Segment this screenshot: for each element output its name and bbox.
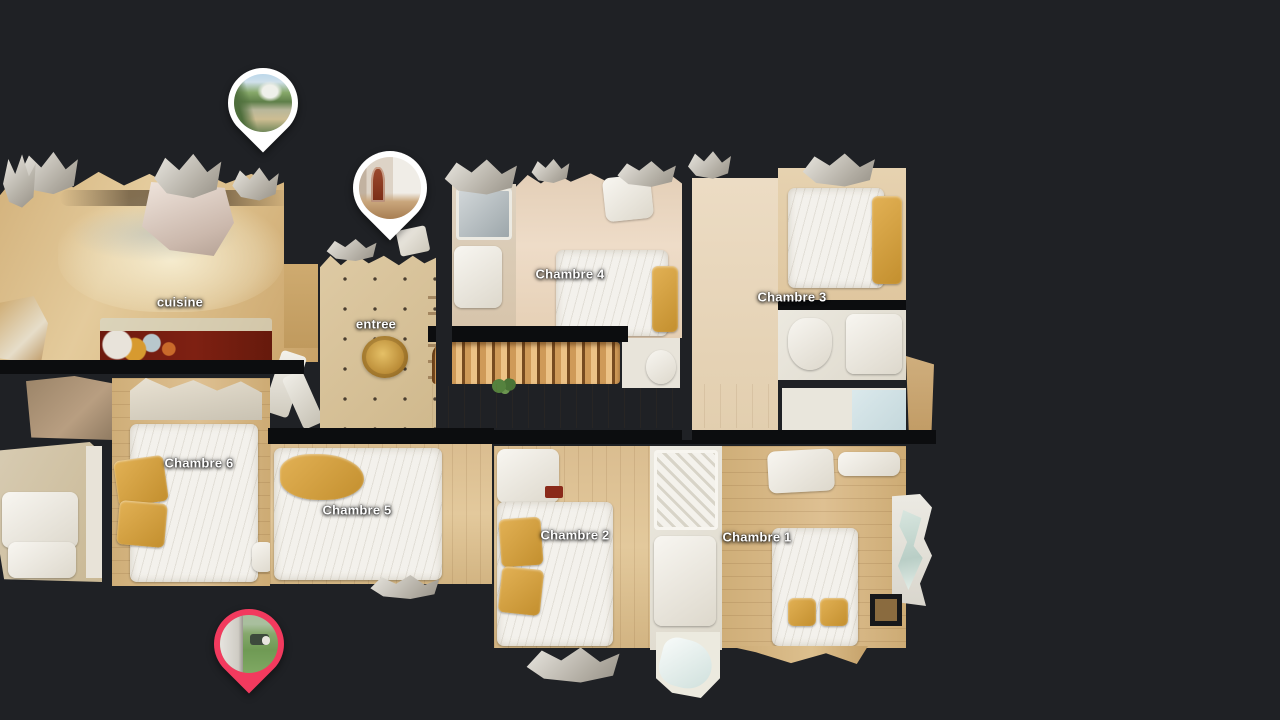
chambre2-red-item <box>545 486 563 498</box>
chambre2-pillow-2 <box>498 566 545 616</box>
lawn-photo-thumbnail <box>220 615 278 673</box>
corridor-floor <box>432 384 780 428</box>
garden-photo-thumbnail <box>234 74 292 132</box>
left-bathroom-counter <box>2 492 78 548</box>
chambre5-pillow <box>280 454 364 500</box>
chambre6-pillow-2 <box>116 500 168 548</box>
top-bathroom-shower <box>456 188 512 240</box>
room-label-chambre3: Chambre 3 <box>758 290 827 305</box>
chambre1-dark-box <box>870 594 902 626</box>
entree-round-table <box>362 336 408 378</box>
room-label-entree: entree <box>356 317 396 332</box>
room-label-chambre5: Chambre 5 <box>323 503 392 518</box>
chambre1-desk <box>767 448 835 493</box>
wall <box>428 326 628 342</box>
wall <box>436 168 452 386</box>
center-bathroom-shower <box>654 450 718 530</box>
chambre1-pillow-2 <box>820 598 848 626</box>
pin-garden-exterior[interactable] <box>228 68 298 138</box>
chambre1-shelf <box>838 452 900 476</box>
chambre1-bottom-fragment <box>728 646 868 664</box>
right-edge-fragment <box>906 356 934 440</box>
room-label-chambre6: Chambre 6 <box>165 456 234 471</box>
entree-door-panel <box>396 225 431 257</box>
chambre6-pillow <box>113 455 169 508</box>
wall <box>494 430 936 444</box>
wall <box>268 428 494 444</box>
hallway-photo-thumbnail <box>359 157 421 219</box>
wall <box>682 162 692 440</box>
wall <box>0 360 304 374</box>
left-bathroom-shower <box>86 446 102 578</box>
left-bathroom-tub <box>8 542 76 578</box>
kitchen-counter <box>100 331 272 361</box>
chambre4-pillows <box>652 266 678 332</box>
room-label-cuisine: cuisine <box>157 295 203 310</box>
arched-door <box>371 167 385 202</box>
room-label-chambre4: Chambre 4 <box>536 267 605 282</box>
pin-garden-active[interactable] <box>214 609 284 679</box>
chambre3-bathtub <box>846 314 902 374</box>
dollhouse-3d-view[interactable]: cuisine entree Chambre 4 Chambre 3 Chamb… <box>0 0 1280 720</box>
white-rock <box>262 636 271 645</box>
chambre2-mesh-debris <box>518 646 626 684</box>
kitchen-wall-gap <box>284 150 322 264</box>
chambre1-bed <box>772 528 858 646</box>
chambre3-bed <box>788 188 884 288</box>
chambre3-toilet <box>788 318 832 370</box>
chambre6-wall-remnant <box>130 378 262 420</box>
chambre3-pillows <box>872 196 902 284</box>
left-laundry-floor <box>26 376 114 440</box>
pin-entry-hallway[interactable] <box>353 151 427 225</box>
wc-toilet <box>646 350 676 384</box>
chambre1-pillow <box>788 598 816 626</box>
wall-edge <box>220 615 243 673</box>
top-bathroom-sink <box>454 246 502 308</box>
kitchen-right-cabinet <box>284 262 318 348</box>
room-label-chambre1: Chambre 1 <box>723 530 792 545</box>
floorplan-canvas[interactable]: cuisine entree Chambre 4 Chambre 3 Chamb… <box>0 0 1280 720</box>
center-bathroom-sink <box>654 536 716 626</box>
room-label-chambre2: Chambre 2 <box>541 528 610 543</box>
staircase <box>432 342 620 384</box>
chambre2-pillow <box>498 517 543 568</box>
